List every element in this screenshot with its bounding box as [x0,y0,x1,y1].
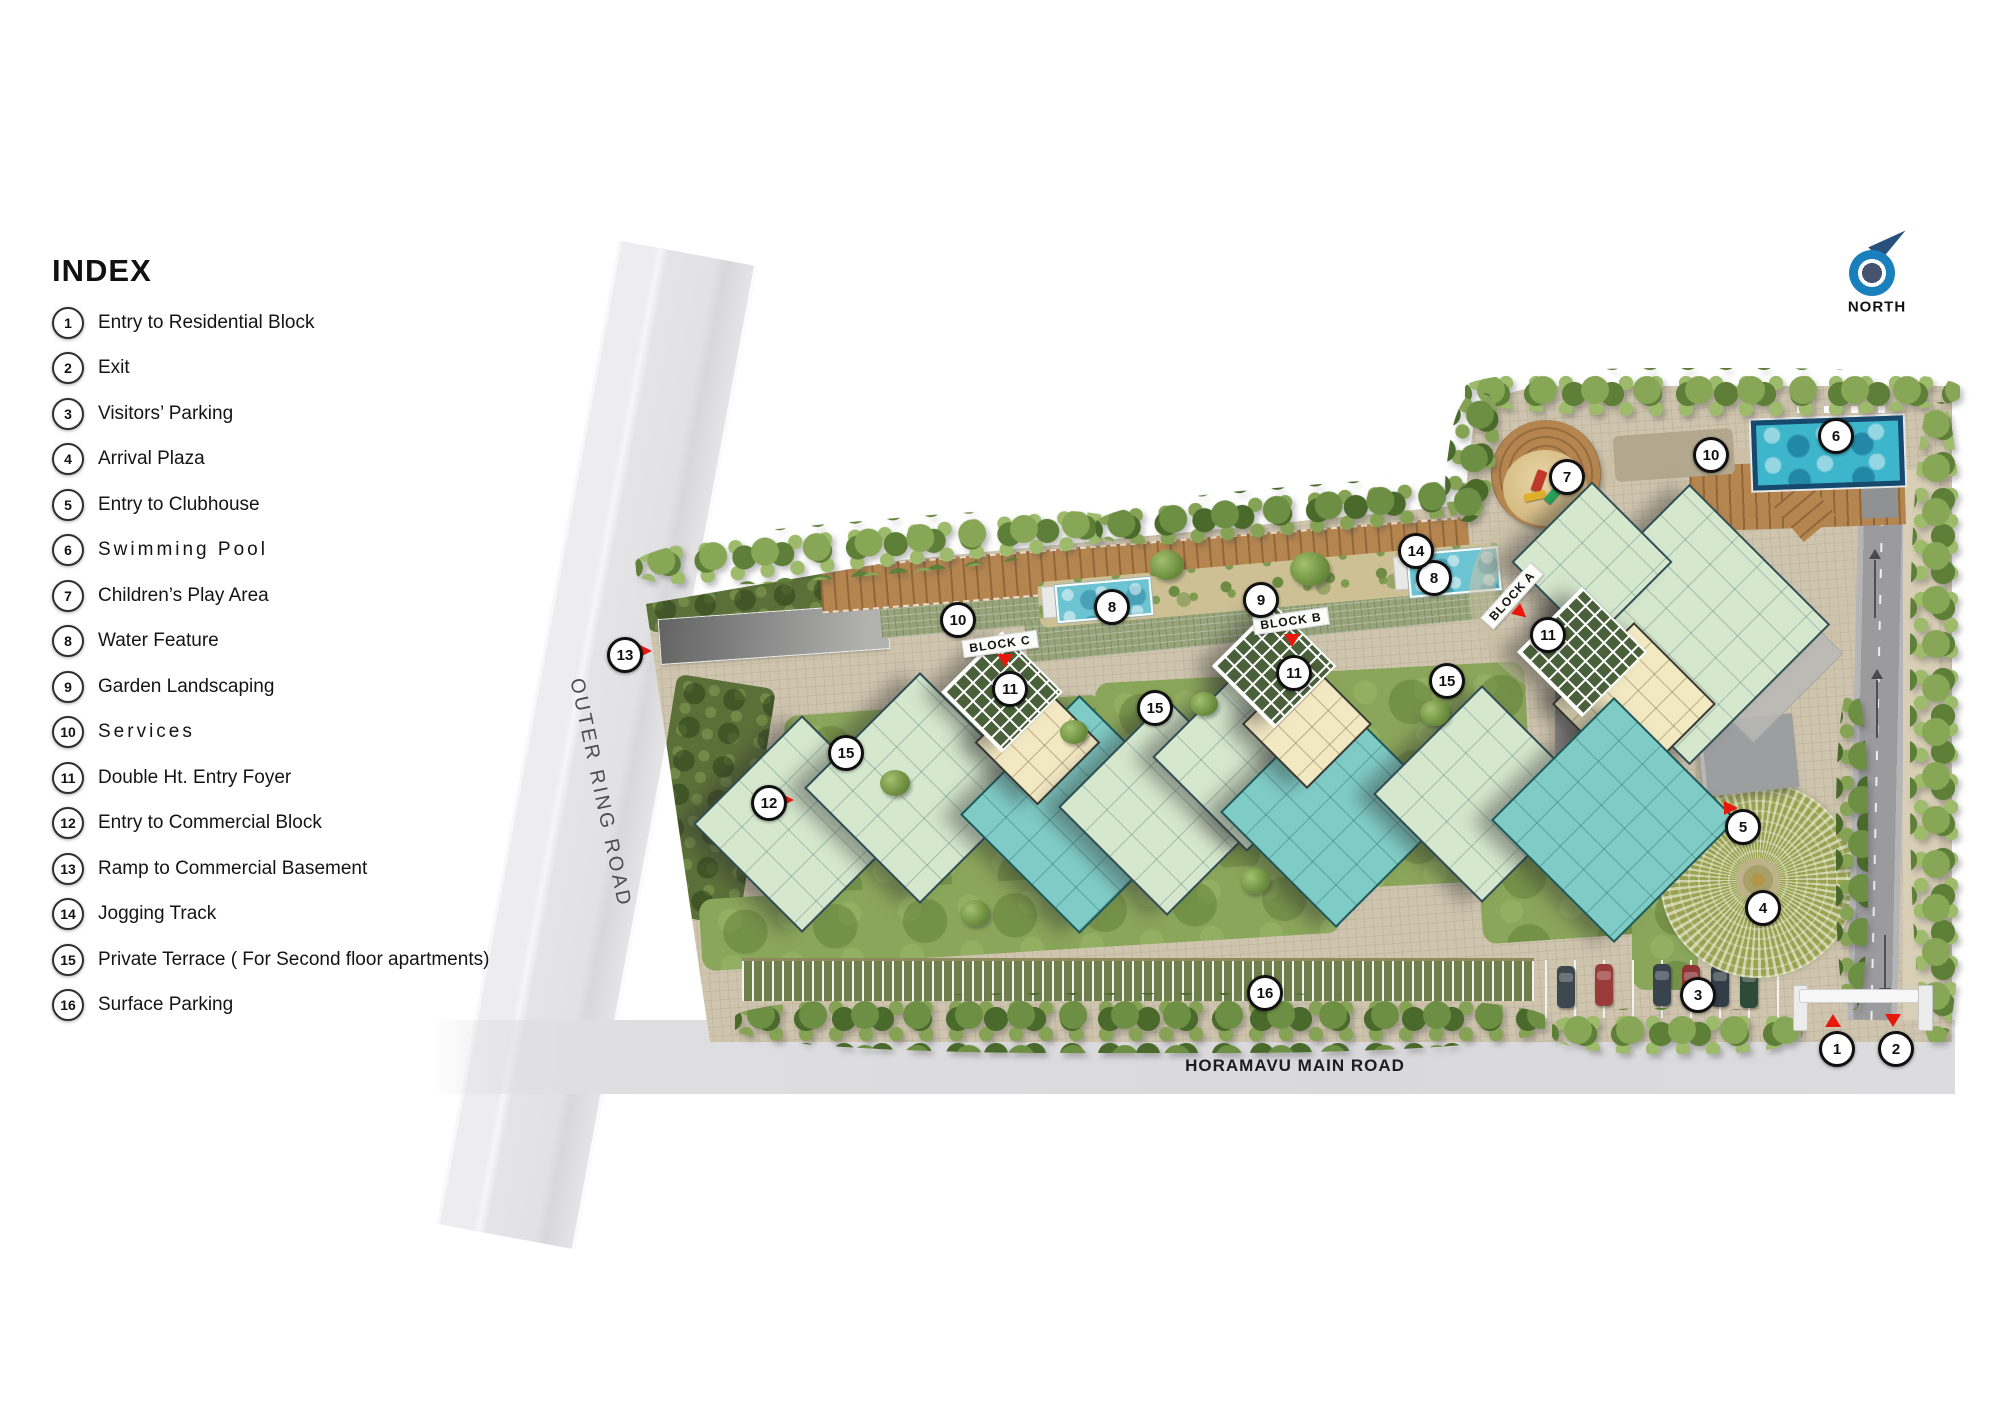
legend-num-3: 3 [52,398,84,430]
legend-num-14: 14 [52,898,84,930]
tree-row-wing-top [1465,368,1960,416]
site-plan-canvas: OUTER RING ROAD HORAMAVU MAIN ROAD [0,0,2000,1416]
legend-label-16: Surface Parking [98,994,233,1016]
legend-label-6: Swimming Pool [98,539,268,561]
tree [1420,700,1450,726]
lane-dash [1870,486,1883,1020]
legend-num-12: 12 [52,807,84,839]
map-marker-12: 12 [751,785,787,821]
map-marker-16: 16 [1247,975,1283,1011]
north-label: NORTH [1848,299,1906,316]
legend-label-2: Exit [98,357,130,379]
drive-arrow-up [1869,549,1881,559]
drive-arrow-stem [1874,560,1876,618]
tree-column-east [1910,402,1964,1042]
gate-pillar [1918,985,1933,1031]
drive-arrow-up [1871,669,1883,679]
parked-car [1557,966,1575,1008]
legend-num-2: 2 [52,352,84,384]
map-marker-4: 4 [1745,890,1781,926]
tree [1290,552,1330,586]
entry-arrow [1825,1014,1841,1027]
map-marker-15c: 15 [1429,663,1465,699]
legend-label-1: Entry to Residential Block [98,312,315,334]
legend-num-13: 13 [52,853,84,885]
shower-pad [1861,487,1898,518]
legend-num-9: 9 [52,671,84,703]
map-marker-2: 2 [1878,1031,1914,1067]
legend-label-11: Double Ht. Entry Foyer [98,767,291,789]
tree-row-south [735,993,1545,1053]
horamavu-main-road-label: HORAMAVU MAIN ROAD [1185,1056,1405,1076]
map-marker-14: 14 [1398,533,1434,569]
legend-num-8: 8 [52,625,84,657]
legend-num-1: 1 [52,307,84,339]
legend-label-4: Arrival Plaza [98,448,205,470]
map-marker-5: 5 [1725,809,1761,845]
bush-column-drive [1836,690,1868,1010]
legend-label-12: Entry to Commercial Block [98,812,322,834]
tree [1240,868,1270,894]
legend-num-7: 7 [52,580,84,612]
legend-label-8: Water Feature [98,630,219,652]
tree [1190,692,1218,716]
map-marker-9: 9 [1243,582,1279,618]
tree [1060,720,1088,744]
legend-num-6: 6 [52,534,84,566]
compass-icon [1849,250,1895,296]
legend-label-5: Entry to Clubhouse [98,494,260,516]
map-marker-6: 6 [1818,418,1854,454]
legend-label-15: Private Terrace ( For Second floor apart… [98,949,489,971]
map-marker-13: 13 [607,637,643,673]
map-marker-3: 3 [1680,977,1716,1013]
tree [1150,550,1184,580]
legend-num-5: 5 [52,489,84,521]
map-marker-11c: 11 [1530,617,1566,653]
map-marker-10: 10 [940,602,976,638]
legend-label-13: Ramp to Commercial Basement [98,858,367,880]
legend-num-10: 10 [52,716,84,748]
tree [960,900,990,926]
legend-num-15: 15 [52,944,84,976]
legend-label-3: Visitors’ Parking [98,403,233,425]
parked-car [1653,964,1671,1006]
legend-label-10: Services [98,721,195,743]
map-marker-15b: 15 [1137,690,1173,726]
map-marker-15: 15 [828,735,864,771]
map-marker-11b: 11 [1276,655,1312,691]
bush-row-parking [1552,1008,1802,1054]
legend-label-9: Garden Landscaping [98,676,274,698]
map-marker-7: 7 [1549,459,1585,495]
map-marker-8: 8 [1094,589,1130,625]
map-marker-11: 11 [992,671,1028,707]
legend-num-16: 16 [52,989,84,1021]
site-area [0,0,2000,1416]
legend-label-7: Children’s Play Area [98,585,269,607]
map-marker-1: 1 [1819,1031,1855,1067]
legend-title: INDEX [52,253,152,289]
legend-num-11: 11 [52,762,84,794]
entry-gate [1793,983,1933,1033]
map-marker-10b: 10 [1693,437,1729,473]
drive-arrow-stem [1876,680,1878,738]
parked-car [1595,964,1613,1006]
tree [880,770,910,796]
drive-arrow-stem [1884,935,1886,990]
legend-label-14: Jogging Track [98,903,216,925]
exit-arrow [1885,1014,1901,1027]
gate-bar [1799,989,1919,1003]
legend-num-4: 4 [52,443,84,475]
block-c-arrow [997,654,1013,667]
block-b-arrow [1284,634,1300,647]
